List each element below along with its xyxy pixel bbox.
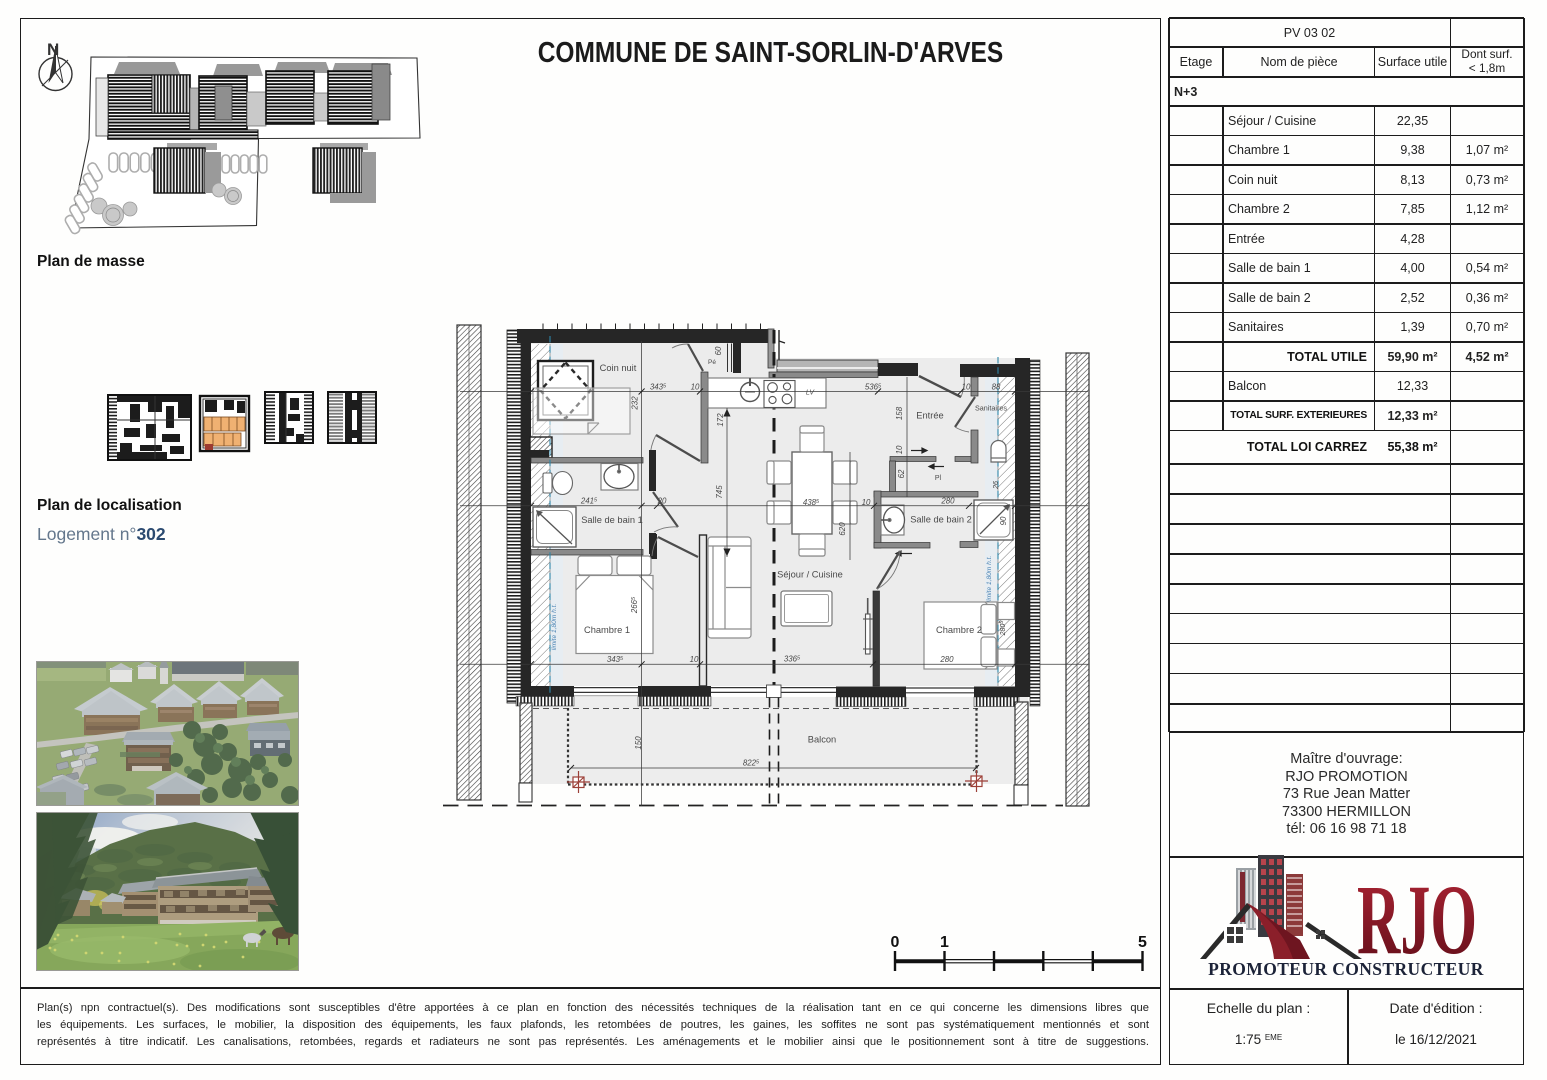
svg-text:N: N (47, 40, 59, 59)
svg-text:62: 62 (897, 469, 906, 478)
svg-text:Chambre 1: Chambre 1 (584, 625, 630, 635)
svg-text:20: 20 (657, 497, 667, 506)
svg-text:limite 1,80m h.t.: limite 1,80m h.t. (986, 556, 993, 603)
svg-text:26: 26 (993, 481, 1000, 490)
svg-text:88: 88 (992, 383, 1001, 392)
svg-text:Entrée: Entrée (916, 411, 943, 421)
svg-text:10: 10 (691, 383, 700, 392)
svg-text:1: 1 (940, 934, 949, 951)
svg-text:Coin nuit: Coin nuit (600, 363, 637, 373)
svg-text:limite 1,80m h.t.: limite 1,80m h.t. (551, 604, 558, 651)
svg-text:LV: LV (806, 390, 816, 397)
svg-text:Balcon: Balcon (808, 735, 836, 745)
svg-text:10: 10 (690, 655, 699, 664)
svg-text:10: 10 (962, 383, 971, 392)
svg-text:0: 0 (891, 934, 900, 951)
svg-text:60: 60 (714, 346, 723, 355)
svg-text:5: 5 (1138, 934, 1147, 951)
svg-text:280: 280 (940, 497, 955, 506)
svg-text:Sanitaires: Sanitaires (975, 404, 1007, 413)
svg-text:PROMOTEUR CONSTRUCTEUR: PROMOTEUR CONSTRUCTEUR (1208, 959, 1484, 979)
svg-text:Chambre 2: Chambre 2 (936, 625, 982, 635)
svg-text:620: 620 (838, 522, 847, 536)
svg-text:Salle de bain 2: Salle de bain 2 (910, 515, 972, 525)
svg-text:10: 10 (862, 498, 871, 507)
svg-text:Séjour / Cuisine: Séjour / Cuisine (777, 570, 843, 580)
svg-text:Pé: Pé (708, 359, 716, 366)
svg-text:232: 232 (631, 396, 640, 411)
svg-text:10: 10 (895, 445, 904, 454)
svg-text:280: 280 (939, 655, 954, 664)
svg-text:90: 90 (999, 516, 1008, 525)
svg-text:172: 172 (716, 413, 725, 427)
svg-text:Pl: Pl (935, 475, 942, 482)
svg-text:745: 745 (715, 485, 724, 499)
svg-text:Salle de bain 1: Salle de bain 1 (581, 515, 643, 525)
svg-text:158: 158 (895, 406, 904, 420)
svg-text:150: 150 (634, 736, 643, 750)
